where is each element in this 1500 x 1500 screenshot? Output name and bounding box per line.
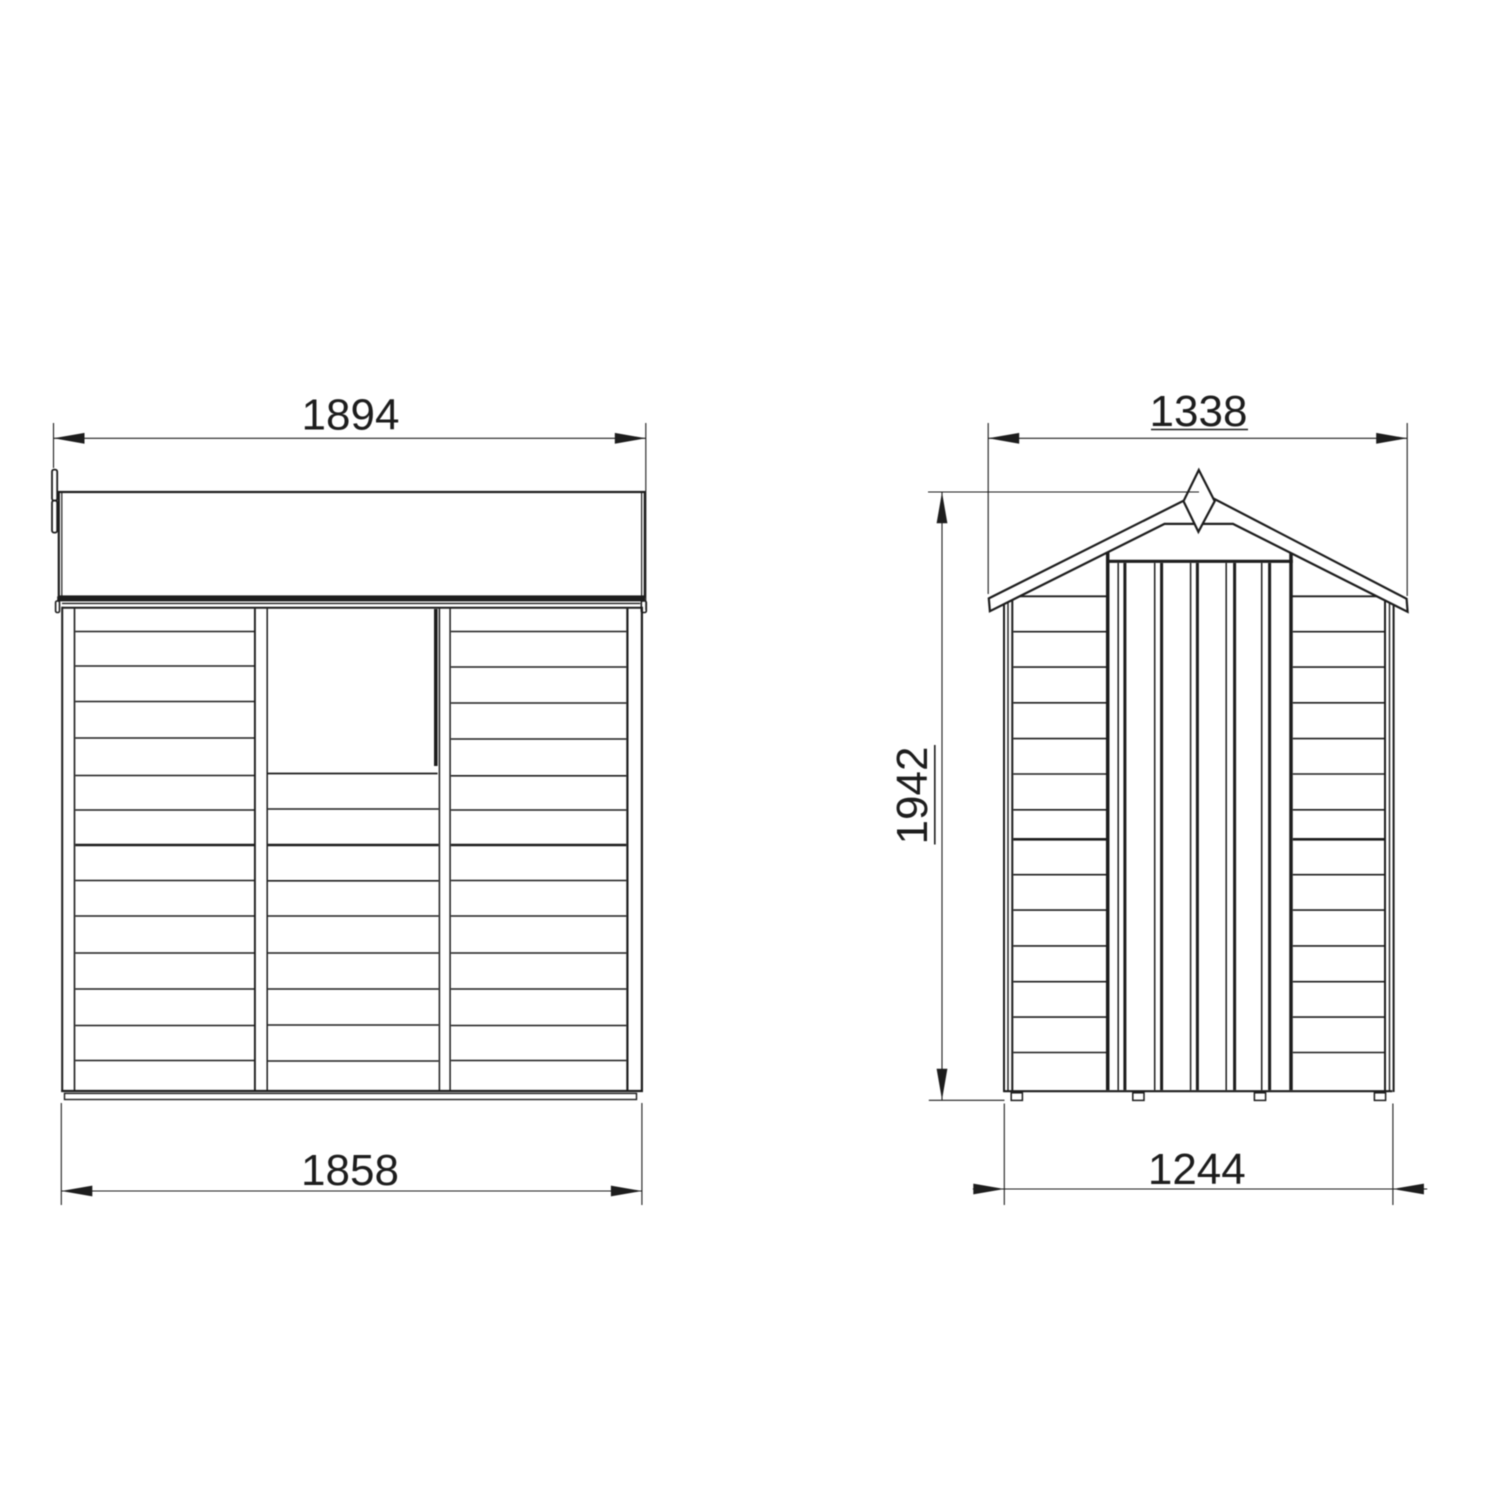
svg-text:1338: 1338 xyxy=(1150,387,1248,436)
svg-text:1942: 1942 xyxy=(888,747,937,845)
svg-text:1894: 1894 xyxy=(302,391,400,440)
svg-text:1858: 1858 xyxy=(301,1146,399,1195)
svg-text:1244: 1244 xyxy=(1148,1145,1246,1194)
